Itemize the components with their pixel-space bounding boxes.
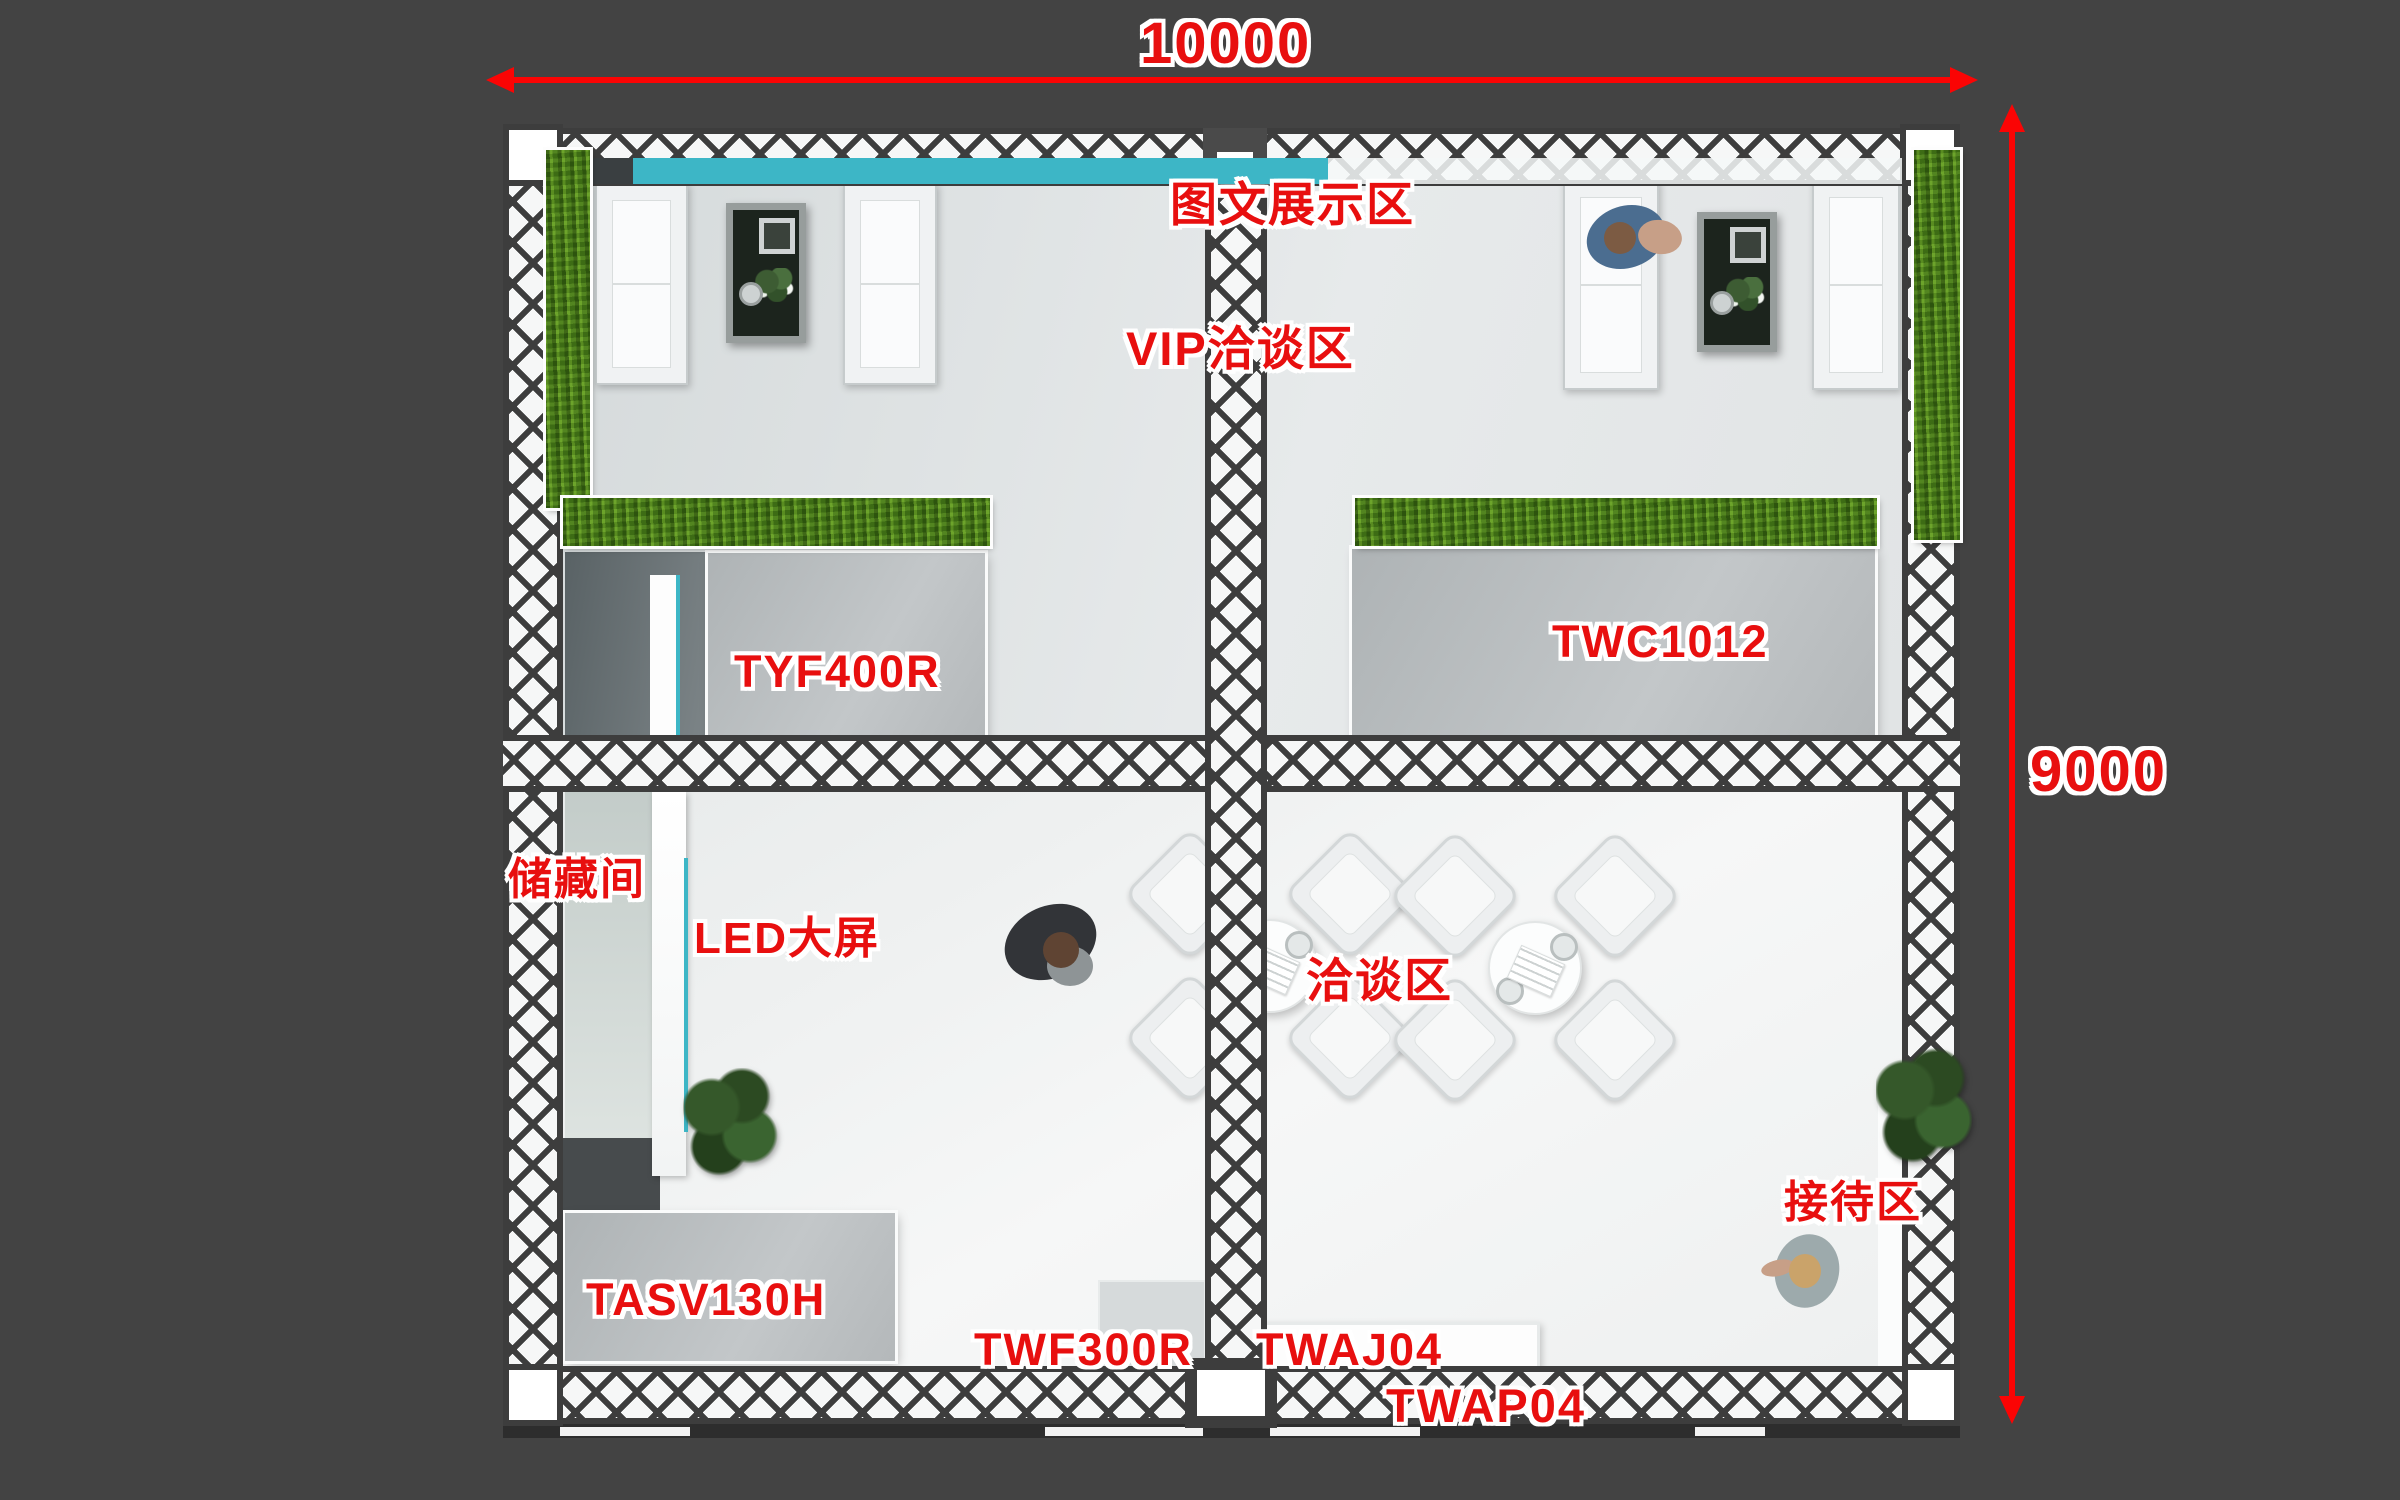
zone-label-led-screen: LED大屏 (694, 902, 880, 966)
sofa (595, 183, 688, 385)
sofa (1812, 180, 1900, 390)
photo-frame-icon (759, 218, 795, 254)
product-label-twap04: TWAP04 (1386, 1378, 1586, 1433)
width-dimension-line (512, 77, 1952, 83)
sofa (843, 183, 937, 385)
person-seated (1580, 198, 1690, 283)
vip1-backwall-white (650, 575, 680, 738)
zone-label-meeting: 洽谈区 (1306, 942, 1453, 1011)
person-head (1604, 222, 1636, 254)
floorplan-canvas: { "title": "exhibition booth top view fl… (0, 0, 2400, 1500)
vip1-backwall-shadow (565, 552, 710, 738)
storage-room-shadow (560, 1138, 660, 1218)
height-dimension-label: 9000 (2030, 738, 2167, 805)
zone-label-vip-meeting: VIP洽谈区 (1126, 310, 1355, 379)
height-dimension-line (2009, 130, 2015, 1398)
hedge-left (546, 150, 590, 508)
plant-lower-right (1876, 1048, 1972, 1168)
base-plate (1045, 1427, 1203, 1436)
base-plate (1695, 1427, 1765, 1436)
person-head (1789, 1254, 1821, 1288)
zone-label-reception: 接待区 (1784, 1166, 1922, 1230)
product-label-twf300r: TWF300R (974, 1324, 1193, 1376)
arrowhead-up-icon (1999, 104, 2025, 132)
coffee-table (726, 203, 806, 343)
person-head (1043, 932, 1079, 968)
hedge-bottom-room2 (1355, 498, 1877, 546)
photo-frame-icon (1730, 227, 1766, 263)
sofa-seat (1829, 197, 1883, 373)
led-screen-wall (652, 792, 686, 1176)
width-dimension-label: 10000 (1140, 10, 1311, 77)
cup-icon (1550, 933, 1578, 961)
product-label-twc1012: TWC1012 (1552, 616, 1769, 668)
arrowhead-left-icon (486, 67, 514, 93)
product-label-tyf400r: TYF400R (734, 646, 941, 698)
hedge-bottom-room1 (563, 498, 990, 546)
coffee-table (1697, 212, 1777, 352)
plant-lower-left (683, 1068, 778, 1180)
person-walking-center (995, 900, 1120, 1005)
product-label-tasv130h: TASV130H (586, 1274, 826, 1326)
zone-label-storage: 储藏间 (508, 843, 646, 907)
hedge-right (1914, 150, 1960, 540)
sofa-seat (612, 200, 671, 368)
product-label-twaj04: TWAJ04 (1256, 1324, 1443, 1376)
truss-corner-block (503, 1364, 563, 1426)
arrowhead-down-icon (1999, 1396, 2025, 1424)
round-table (1488, 921, 1582, 1015)
zone-label-graphic-display: 图文展示区 (1170, 166, 1415, 235)
cup-icon (1710, 291, 1734, 315)
truss-corner-block (1902, 1364, 1960, 1426)
sofa-seat (860, 200, 920, 368)
base-plate (560, 1427, 690, 1436)
arrowhead-right-icon (1950, 67, 1978, 93)
person-reception (1763, 1230, 1855, 1320)
cup-icon (739, 282, 763, 306)
